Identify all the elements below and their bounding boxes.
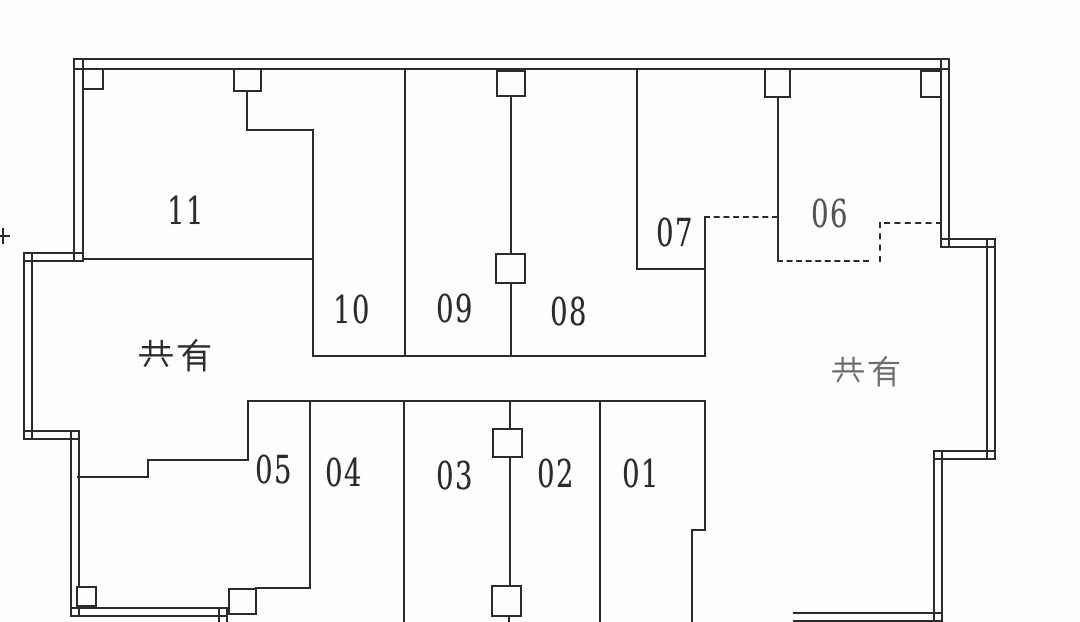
common-west-south-wall-2: [77, 476, 149, 478]
partition-11-common-west: [82, 258, 314, 260]
partition-10-09: [404, 68, 406, 357]
unit-02-label: 02: [537, 452, 575, 496]
column-pillar-top-left: [82, 68, 104, 90]
unit-11-label: 11: [167, 189, 205, 233]
partition-04-03: [403, 400, 405, 622]
ledge-below-common-west: [255, 587, 311, 589]
corridor-north-wall: [312, 355, 706, 357]
unit-09-label: 09: [436, 287, 474, 331]
unit-05-label: 05: [255, 448, 293, 492]
outer-wall-left-mid: [23, 252, 33, 440]
common-west-south-wall: [148, 459, 249, 461]
partition-01-east-lower: [691, 529, 693, 622]
column-pillar-mid: [495, 253, 526, 284]
floor-plan: 11 10 09 08 07 06 05 04 03 02 01: [0, 0, 1080, 622]
partition-unit11-notch: [246, 90, 248, 131]
partition-01-east-jog: [691, 529, 706, 531]
outer-wall-top: [73, 58, 950, 70]
unit-04-label: 04: [325, 451, 363, 495]
partition-03-02-seg2: [509, 457, 511, 586]
partition-07-common-east: [704, 216, 706, 356]
boundary-06-common-dashed: [884, 222, 942, 224]
column-pillar-top-right: [920, 70, 942, 98]
unit-03-label: 03: [436, 454, 474, 498]
unit-10-label: 10: [333, 288, 371, 332]
outer-wall-right-mid: [986, 238, 996, 460]
common-area-west-label: [139, 339, 211, 373]
partition-06-bottom-dashed: [777, 260, 869, 262]
partition-01-east-upper: [704, 400, 706, 531]
common-area-east-label: [832, 356, 900, 388]
column-pillar-bottom-2: [228, 588, 257, 615]
column-pillar-bottom-mid-upper: [492, 428, 523, 458]
partition-05-04: [309, 400, 311, 589]
partition-06-west-wall: [777, 97, 779, 262]
unit-06-label: 06: [811, 192, 849, 236]
unit-08-label: 08: [550, 290, 588, 334]
column-pillar-top-4: [764, 68, 791, 98]
partition-02-01: [599, 401, 601, 622]
column-pillar-top-2: [233, 68, 262, 92]
column-pillar-bottom-left: [76, 586, 97, 607]
partition-08-07: [636, 70, 638, 270]
outer-wall-bottom-left: [70, 607, 228, 617]
outer-wall-bottom-left-return: [218, 607, 228, 622]
boundary-07-dashed: [704, 216, 778, 218]
unit-01-label: 01: [622, 452, 660, 496]
partition-common-05: [247, 400, 249, 461]
partition-07-bottom: [636, 268, 705, 270]
column-pillar-top-3: [496, 70, 526, 97]
partition-03-02-seg1: [509, 401, 511, 429]
outer-wall-bottom-right: [793, 612, 943, 622]
partition-09-08-lower: [510, 283, 512, 357]
corridor-south-wall: [247, 400, 706, 402]
partition-11-10: [312, 129, 314, 357]
outer-wall-right-lower: [933, 450, 943, 622]
partition-09-08-upper: [510, 96, 512, 254]
margin-tick-vertical: [2, 228, 4, 244]
partition-06-east-dashed: [879, 222, 881, 262]
unit-07-label: 07: [656, 211, 694, 255]
partition-unit11-notch-top: [246, 129, 314, 131]
column-pillar-bottom-mid-lower: [491, 585, 522, 617]
